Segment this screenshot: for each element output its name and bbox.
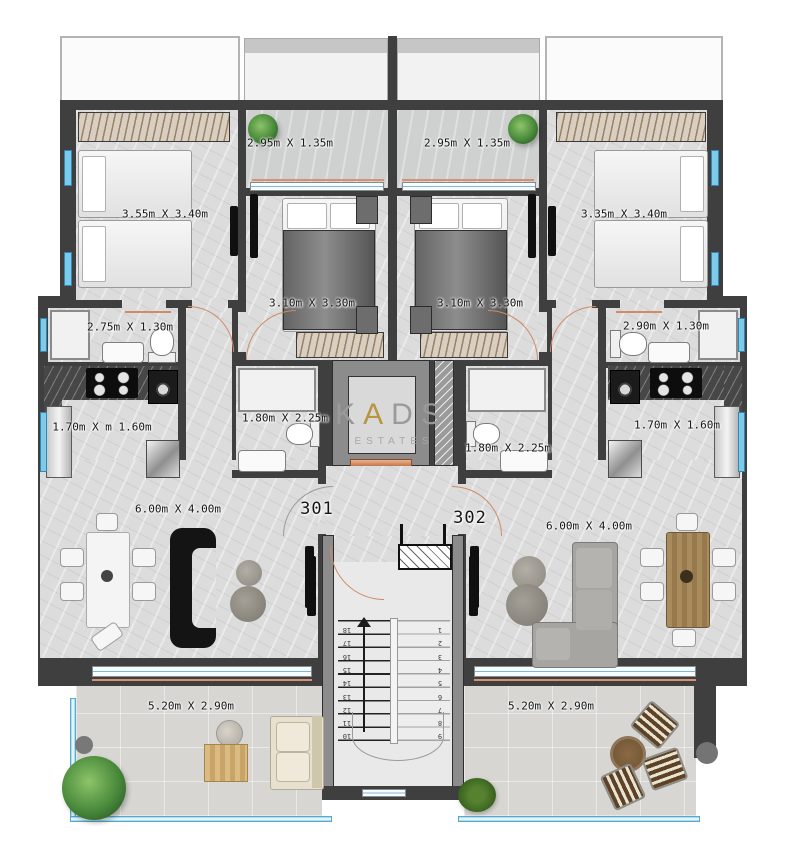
door-leaf xyxy=(400,524,403,546)
stairwell-wall xyxy=(452,535,464,800)
room-dimension-label: 2.95m X 1.35m xyxy=(424,137,510,150)
roof-awning xyxy=(545,36,723,102)
shower-icon xyxy=(468,368,546,412)
tv-icon xyxy=(528,194,536,258)
tv-icon xyxy=(307,556,316,616)
sliding-door-lintel xyxy=(92,679,312,681)
room-dimension-label: 5.20m X 2.90m xyxy=(148,700,234,713)
brand-letter: K xyxy=(335,398,363,431)
sliding-door-lintel xyxy=(402,179,534,181)
door-leaf xyxy=(616,311,662,313)
window xyxy=(64,252,72,286)
rug-icon xyxy=(506,584,548,626)
sliding-door-lintel xyxy=(252,179,384,181)
pillow xyxy=(680,226,704,282)
tv-icon xyxy=(469,556,478,616)
nightstand xyxy=(356,196,378,224)
sofa-cutout xyxy=(192,548,216,628)
fridge-icon xyxy=(608,440,642,478)
washing-machine-icon xyxy=(148,370,178,404)
room-dimension-label: 2.75m X 1.30m xyxy=(87,321,173,334)
column xyxy=(75,736,93,754)
shower-icon xyxy=(698,310,738,360)
tv-icon xyxy=(230,206,238,256)
sofa-cushion xyxy=(276,722,310,752)
room-dimension-label: 6.00m X 4.00m xyxy=(546,520,632,533)
wardrobe xyxy=(78,112,230,142)
chair-icon xyxy=(96,513,118,531)
sofa-cushion xyxy=(536,628,570,660)
nightstand xyxy=(410,196,432,224)
chair-icon xyxy=(640,548,664,567)
stair-turn-arc xyxy=(352,712,444,761)
pillow xyxy=(680,156,704,212)
plant-icon xyxy=(508,114,538,144)
ottoman-icon xyxy=(236,560,262,586)
pillow xyxy=(82,156,106,212)
wardrobe xyxy=(296,332,384,358)
door-opening xyxy=(620,300,664,310)
stair-step-number: 14 xyxy=(341,679,353,687)
toilet-icon xyxy=(286,423,313,445)
room-dimension-label: 3.10m X 3.30m xyxy=(269,297,355,310)
stairwell-window xyxy=(362,789,406,797)
stair-step-number: 9 xyxy=(434,732,446,740)
washing-machine-icon xyxy=(610,370,640,404)
sofa-cushion xyxy=(276,752,310,782)
column xyxy=(696,742,718,764)
sliding-door-lintel xyxy=(474,679,696,681)
entrance-hall-floor xyxy=(326,466,458,536)
nightstand xyxy=(356,306,378,334)
room-dimension-label: 3.55m X 3.40m xyxy=(122,208,208,221)
brand-letter-gold: A xyxy=(363,398,391,431)
glass-railing xyxy=(70,816,332,822)
stair-step-number: 10 xyxy=(341,732,353,740)
pillow xyxy=(287,203,327,229)
pouf-icon xyxy=(216,720,243,747)
roof-awning xyxy=(60,36,240,102)
window xyxy=(64,150,72,186)
toilet-icon xyxy=(619,332,647,356)
stair-step-number: 3 xyxy=(434,653,446,661)
shower-icon xyxy=(238,368,316,412)
door-opening xyxy=(122,300,166,310)
brand-letter: DS xyxy=(391,398,449,431)
chair-icon xyxy=(672,629,696,647)
room-dimension-label: 6.00m X 4.00m xyxy=(135,503,221,516)
stair-step-number: 13 xyxy=(341,693,353,701)
stair-step-number: 1 xyxy=(434,626,446,634)
wall xyxy=(388,36,397,102)
chair-icon xyxy=(60,582,84,601)
stair-step-number: 16 xyxy=(341,653,353,661)
fridge-icon xyxy=(146,440,180,478)
sofa-cushion xyxy=(576,590,612,630)
stair-direction-line xyxy=(363,626,365,732)
landing-hatch xyxy=(398,544,452,570)
table-decor xyxy=(101,570,113,582)
door-leaf xyxy=(443,524,446,546)
monstera-plant-icon xyxy=(62,756,126,820)
door-opening xyxy=(537,312,547,352)
balcony-window xyxy=(250,182,384,191)
room-dimension-label: 1.70m X m 1.60m xyxy=(52,421,151,434)
sink-icon xyxy=(102,342,144,363)
chair-icon xyxy=(676,513,698,531)
table-decor xyxy=(680,570,693,583)
pillow xyxy=(462,203,502,229)
window xyxy=(738,318,745,352)
chair-icon xyxy=(60,548,84,567)
stair-step-number: 6 xyxy=(434,693,446,701)
stair-step-number: 11 xyxy=(341,719,353,727)
balcony-window xyxy=(402,182,536,191)
brand-watermark: KADS xyxy=(335,398,449,432)
pillow xyxy=(82,226,106,282)
window xyxy=(738,412,745,472)
coffee-table-wood xyxy=(204,744,248,782)
sink-icon xyxy=(648,342,690,363)
cooktop-icon xyxy=(86,368,138,398)
nightstand xyxy=(410,306,432,334)
tv-icon xyxy=(548,206,556,256)
roof-awning xyxy=(244,38,388,102)
door-leaf xyxy=(125,311,171,313)
kitchen-sink-icon xyxy=(714,406,740,478)
floor-plan: 1 2 3 4 5 6 7 8 9 18 17 16 15 14 13 12 1… xyxy=(0,0,785,854)
window xyxy=(711,252,719,286)
window xyxy=(711,150,719,186)
stair-step-number: 2 xyxy=(434,639,446,647)
room-dimension-label: 2.90m X 1.30m xyxy=(623,320,709,333)
roof-awning xyxy=(397,38,540,102)
sofa-cushion xyxy=(576,548,612,588)
unit-302-label: 302 xyxy=(453,508,487,528)
room-dimension-label: 3.10m X 3.30m xyxy=(437,297,523,310)
room-dimension-label: 1.80m X 2.25m xyxy=(465,442,551,455)
window xyxy=(40,318,47,352)
chair-icon xyxy=(712,548,736,567)
stair-step-number: 5 xyxy=(434,679,446,687)
chair-icon xyxy=(132,548,156,567)
wardrobe xyxy=(556,112,706,142)
ottoman-icon xyxy=(230,586,266,622)
shower-icon xyxy=(50,310,90,360)
chair-icon xyxy=(712,582,736,601)
window xyxy=(40,412,47,472)
tv-icon xyxy=(250,194,258,258)
chair-icon xyxy=(640,582,664,601)
stair-step-number: 7 xyxy=(434,706,446,714)
stair-direction-arrow xyxy=(357,617,371,627)
cooktop-icon xyxy=(650,368,702,398)
room-dimension-label: 3.35m X 3.40m xyxy=(581,208,667,221)
kitchen-sink-icon xyxy=(46,406,72,478)
unit-301-label: 301 xyxy=(300,499,334,519)
chair-icon xyxy=(132,582,156,601)
room-dimension-label: 1.70m X 1.60m xyxy=(634,419,720,432)
glass-railing xyxy=(458,816,700,822)
terrace-sliding-window xyxy=(92,666,312,677)
stair-step-number: 17 xyxy=(341,639,353,647)
sofa-back xyxy=(312,716,322,788)
door-opening xyxy=(238,312,248,352)
stair-step-number: 12 xyxy=(341,706,353,714)
room-dimension-label: 5.20m X 2.90m xyxy=(508,700,594,713)
room-dimension-label: 2.95m X 1.35m xyxy=(247,137,333,150)
room-dimension-label: 1.80m X 2.25m xyxy=(242,412,328,425)
stair-step-number: 8 xyxy=(434,719,446,727)
brand-watermark-subtitle: ESTATES xyxy=(354,436,433,447)
stair-step-number: 15 xyxy=(341,666,353,674)
grass-plant-icon xyxy=(458,778,496,812)
sink-icon xyxy=(238,450,286,472)
stair-step-number: 4 xyxy=(434,666,446,674)
stair-step-number: 18 xyxy=(341,626,353,634)
